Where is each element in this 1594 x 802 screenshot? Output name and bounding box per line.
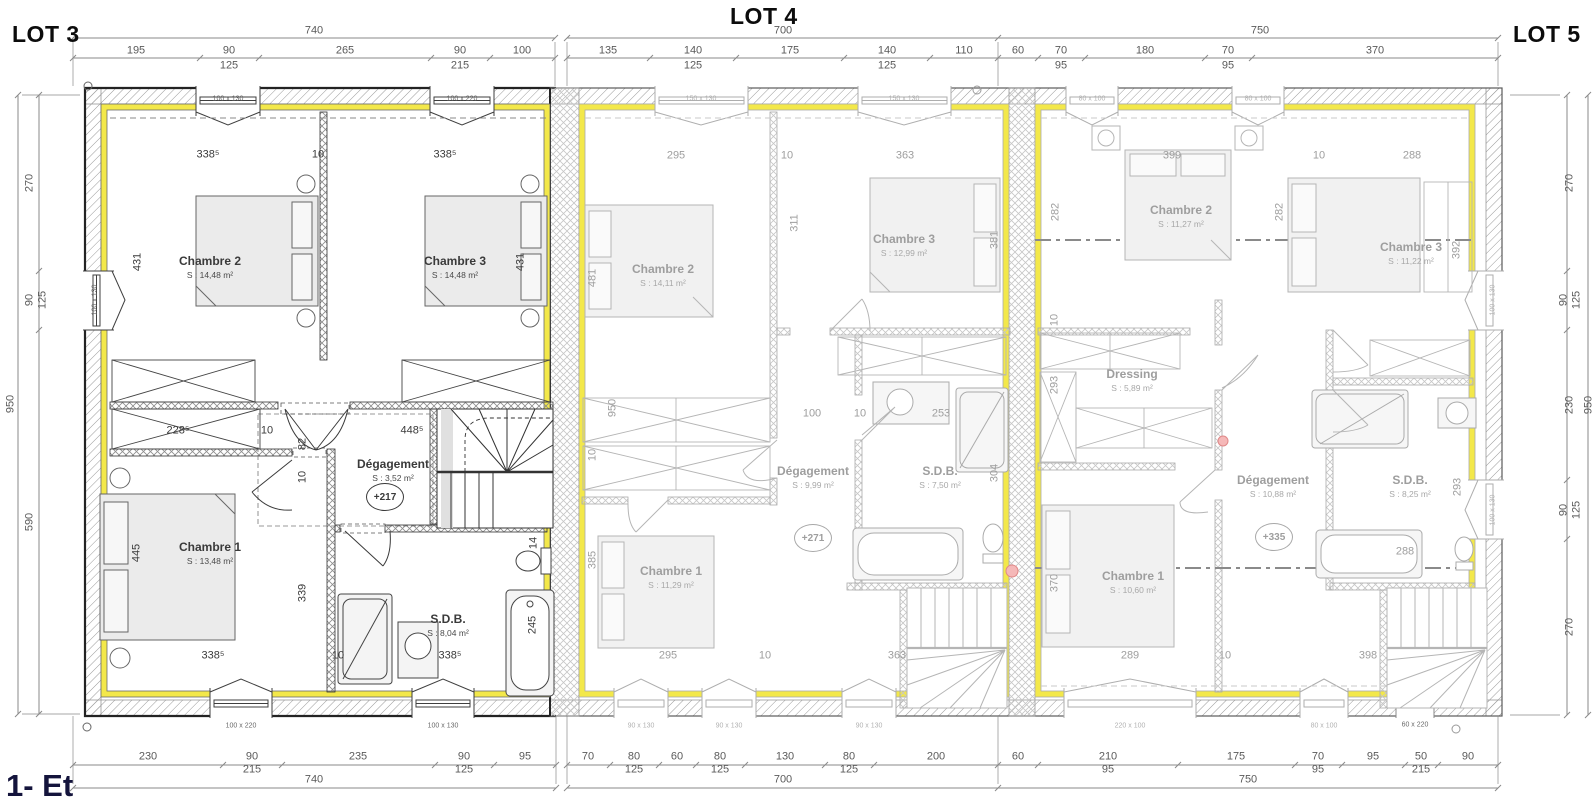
floorplan-page: LOT 3 LOT 4 LOT 5 1- Et 7401959012526590…: [0, 0, 1594, 802]
room-label: Chambre 3: [424, 255, 486, 267]
dim-label: 338⁵: [197, 150, 220, 161]
room-label: Chambre 1: [1102, 570, 1164, 582]
dim-label: 100: [803, 409, 821, 420]
level-marker: +271: [794, 524, 832, 552]
dim-label: 80: [628, 752, 640, 763]
dim-label: 125: [878, 61, 896, 72]
dim-label: 125: [711, 765, 729, 776]
dim-label: 140: [878, 46, 896, 57]
dim-label: 293: [1050, 376, 1061, 394]
dim-label: 431: [516, 253, 527, 271]
dim-label: 60: [1012, 46, 1024, 57]
dim-label: 70: [1222, 46, 1234, 57]
dim-label: 95: [519, 752, 531, 763]
dim-label: 448⁵: [401, 426, 424, 437]
dim-label: 215: [451, 61, 469, 72]
dim-label: 338⁵: [202, 651, 225, 662]
room-label: Chambre 1: [640, 565, 702, 577]
dim-label: 293: [1453, 478, 1464, 496]
dim-label: 381: [990, 231, 1001, 249]
dim-label: 200: [927, 752, 945, 763]
dim-label: 125: [684, 61, 702, 72]
dim-label: 100: [513, 46, 531, 57]
window-size-label: 150 x 130: [889, 96, 920, 103]
dim-label: 295: [667, 151, 685, 162]
dim-label: 265: [336, 46, 354, 57]
dim-label: 339: [298, 584, 309, 602]
dim-label: 431: [133, 253, 144, 271]
dim-label: 10: [1219, 651, 1231, 662]
dim-label: 253: [932, 409, 950, 420]
room-area-label: S : 12,99 m²: [881, 249, 927, 258]
dim-label: 270: [1565, 618, 1576, 636]
dim-label: 700: [774, 26, 792, 37]
room-label: Dégagement: [1237, 474, 1309, 486]
dim-label: 10: [261, 426, 273, 437]
room-label: Chambre 3: [873, 233, 935, 245]
dim-label: 399: [1163, 151, 1181, 162]
room-label: Dégagement: [357, 458, 429, 470]
room-area-label: S : 7,50 m²: [919, 481, 961, 490]
dim-label: 90: [1462, 752, 1474, 763]
dim-label: 235: [349, 752, 367, 763]
dim-label: 82: [298, 438, 309, 450]
room-label: Dressing: [1106, 368, 1157, 380]
dim-label: 363: [888, 651, 906, 662]
dim-label: 740: [305, 775, 323, 786]
dim-label: 270: [1565, 174, 1576, 192]
room-area-label: S : 10,60 m²: [1110, 586, 1156, 595]
dim-label: 228⁵: [167, 426, 190, 437]
room-label: Chambre 1: [179, 541, 241, 553]
window-size-label: 90 x 130: [628, 723, 655, 730]
dim-label: 60: [671, 752, 683, 763]
dim-label: 230: [1565, 396, 1576, 414]
dim-label: 10: [759, 651, 771, 662]
window-size-label: 100 x 130: [92, 285, 99, 316]
dim-label: 10: [298, 471, 309, 483]
dim-label: 90: [1559, 504, 1570, 516]
dim-label: 125: [220, 61, 238, 72]
room-label: S.D.B.: [430, 613, 465, 625]
dim-label: 90: [246, 752, 258, 763]
dim-label: 338⁵: [434, 150, 457, 161]
dim-label: 95: [1367, 752, 1379, 763]
dim-label: 385: [588, 551, 599, 569]
dim-label: 10: [781, 151, 793, 162]
dim-label: 10: [1313, 151, 1325, 162]
dim-label: 70: [1055, 46, 1067, 57]
dim-label: 175: [781, 46, 799, 57]
dim-label: 245: [528, 616, 539, 634]
lot5-plan: [1035, 118, 1487, 708]
floor-stage-label: 1- Et: [6, 768, 73, 802]
dim-label: 95: [1055, 61, 1067, 72]
dim-label: 750: [1251, 26, 1269, 37]
level-marker: +335: [1255, 523, 1293, 551]
dim-label: 215: [1412, 765, 1430, 776]
dim-label: 950: [608, 399, 619, 417]
dim-label: 750: [1239, 775, 1257, 786]
dim-label: 95: [1102, 765, 1114, 776]
room-label: Chambre 2: [632, 263, 694, 275]
room-area-label: S : 11,22 m²: [1388, 257, 1434, 266]
room-area-label: S : 11,29 m²: [648, 581, 694, 590]
room-area-label: S : 3,52 m²: [372, 474, 414, 483]
dim-label: 90: [458, 752, 470, 763]
window-size-label: 100 x 130: [1490, 495, 1497, 526]
window-size-label: 60 x 220: [1402, 722, 1429, 729]
dim-label: 125: [625, 765, 643, 776]
dim-label: 950: [6, 395, 17, 413]
dim-label: 125: [840, 765, 858, 776]
dim-label: 95: [1312, 765, 1324, 776]
dim-label: 370: [1050, 574, 1061, 592]
window-size-label: 90 x 130: [856, 723, 883, 730]
dim-label: 590: [25, 513, 36, 531]
dim-label: 90: [454, 46, 466, 57]
room-area-label: S : 8,04 m²: [427, 629, 469, 638]
dim-label: 295: [659, 651, 677, 662]
window-size-label: 220 x 100: [1115, 723, 1146, 730]
dim-label: 445: [132, 544, 143, 562]
room-area-label: S : 13,48 m²: [187, 557, 233, 566]
dim-label: 110: [955, 46, 973, 57]
dim-label: 140: [684, 46, 702, 57]
dim-label: 10: [332, 651, 344, 662]
dim-label: 289: [1121, 651, 1139, 662]
window-size-label: 90 x 130: [716, 723, 743, 730]
room-label: Dégagement: [777, 465, 849, 477]
level-marker: +217: [366, 483, 404, 511]
room-label: S.D.B.: [922, 465, 957, 477]
room-label: Chambre 2: [1150, 204, 1212, 216]
dim-label: 195: [127, 46, 145, 57]
room-area-label: S : 14,48 m²: [432, 271, 478, 280]
window-size-label: 80 x 100: [1245, 96, 1272, 103]
dim-label: 135: [599, 46, 617, 57]
room-label: S.D.B.: [1392, 474, 1427, 486]
dim-label: 288: [1403, 151, 1421, 162]
window-size-label: 80 x 100: [1311, 723, 1338, 730]
dim-label: 270: [25, 174, 36, 192]
dim-label: 10: [312, 150, 324, 161]
room-area-label: S : 10,88 m²: [1250, 490, 1296, 499]
window-size-label: 100 x 130: [428, 723, 459, 730]
lot3-title: LOT 3: [12, 21, 80, 48]
dim-label: 950: [1584, 396, 1594, 414]
dim-label: 90: [1559, 294, 1570, 306]
room-area-label: S : 5,89 m²: [1111, 384, 1153, 393]
room-area-label: S : 11,27 m²: [1158, 220, 1204, 229]
dim-label: 70: [1312, 752, 1324, 763]
room-area-label: S : 9,99 m²: [792, 481, 834, 490]
dim-label: 338⁵: [439, 651, 462, 662]
dim-label: 392: [1452, 241, 1463, 259]
room-area-label: S : 8,25 m²: [1389, 490, 1431, 499]
window-size-label: 100 x 220: [226, 723, 257, 730]
dim-label: 210: [1099, 752, 1117, 763]
dim-label: 125: [455, 765, 473, 776]
floorplan-linework: [0, 0, 1594, 802]
dim-label: 14: [529, 537, 540, 549]
dim-label: 50: [1415, 752, 1427, 763]
dim-label: 10: [1050, 314, 1061, 326]
dim-label: 282: [1275, 203, 1286, 221]
dim-label: 125: [1572, 501, 1583, 519]
window-size-label: 80 x 100: [1079, 96, 1106, 103]
dim-label: 125: [1572, 291, 1583, 309]
room-label: Chambre 3: [1380, 241, 1442, 253]
dim-label: 230: [139, 752, 157, 763]
dim-label: 90: [25, 294, 36, 306]
window-size-label: 150 x 130: [686, 96, 717, 103]
dim-label: 180: [1136, 46, 1154, 57]
room-area-label: S : 14,48 m²: [187, 271, 233, 280]
dim-label: 80: [714, 752, 726, 763]
room-label: Chambre 2: [179, 255, 241, 267]
dim-label: 175: [1227, 752, 1245, 763]
dim-label: 481: [588, 269, 599, 287]
dim-label: 90: [223, 46, 235, 57]
dim-label: 95: [1222, 61, 1234, 72]
dim-label: 60: [1012, 752, 1024, 763]
dim-label: 80: [843, 752, 855, 763]
window-size-label: 100 x 130: [213, 96, 244, 103]
dim-label: 370: [1366, 46, 1384, 57]
dim-label: 700: [774, 775, 792, 786]
dim-label: 398: [1359, 651, 1377, 662]
dim-label: 740: [305, 26, 323, 37]
dim-label: 10: [588, 449, 599, 461]
lot3-plan: [100, 112, 554, 696]
dim-label: 304: [990, 464, 1001, 482]
window-size-label: 100 x 130: [1490, 285, 1497, 316]
window-size-label: 100 x 220: [447, 96, 478, 103]
room-area-label: S : 14,11 m²: [640, 279, 686, 288]
lot5-title: LOT 5: [1513, 21, 1581, 48]
dim-label: 282: [1051, 203, 1062, 221]
dim-label: 288: [1396, 547, 1414, 558]
dim-label: 10: [854, 409, 866, 420]
dim-label: 215: [243, 765, 261, 776]
lot4-plan: [582, 112, 1018, 708]
dim-label: 363: [896, 151, 914, 162]
dim-label: 311: [790, 214, 801, 232]
dim-label: 130: [776, 752, 794, 763]
dim-label: 125: [38, 291, 49, 309]
dim-label: 70: [582, 752, 594, 763]
